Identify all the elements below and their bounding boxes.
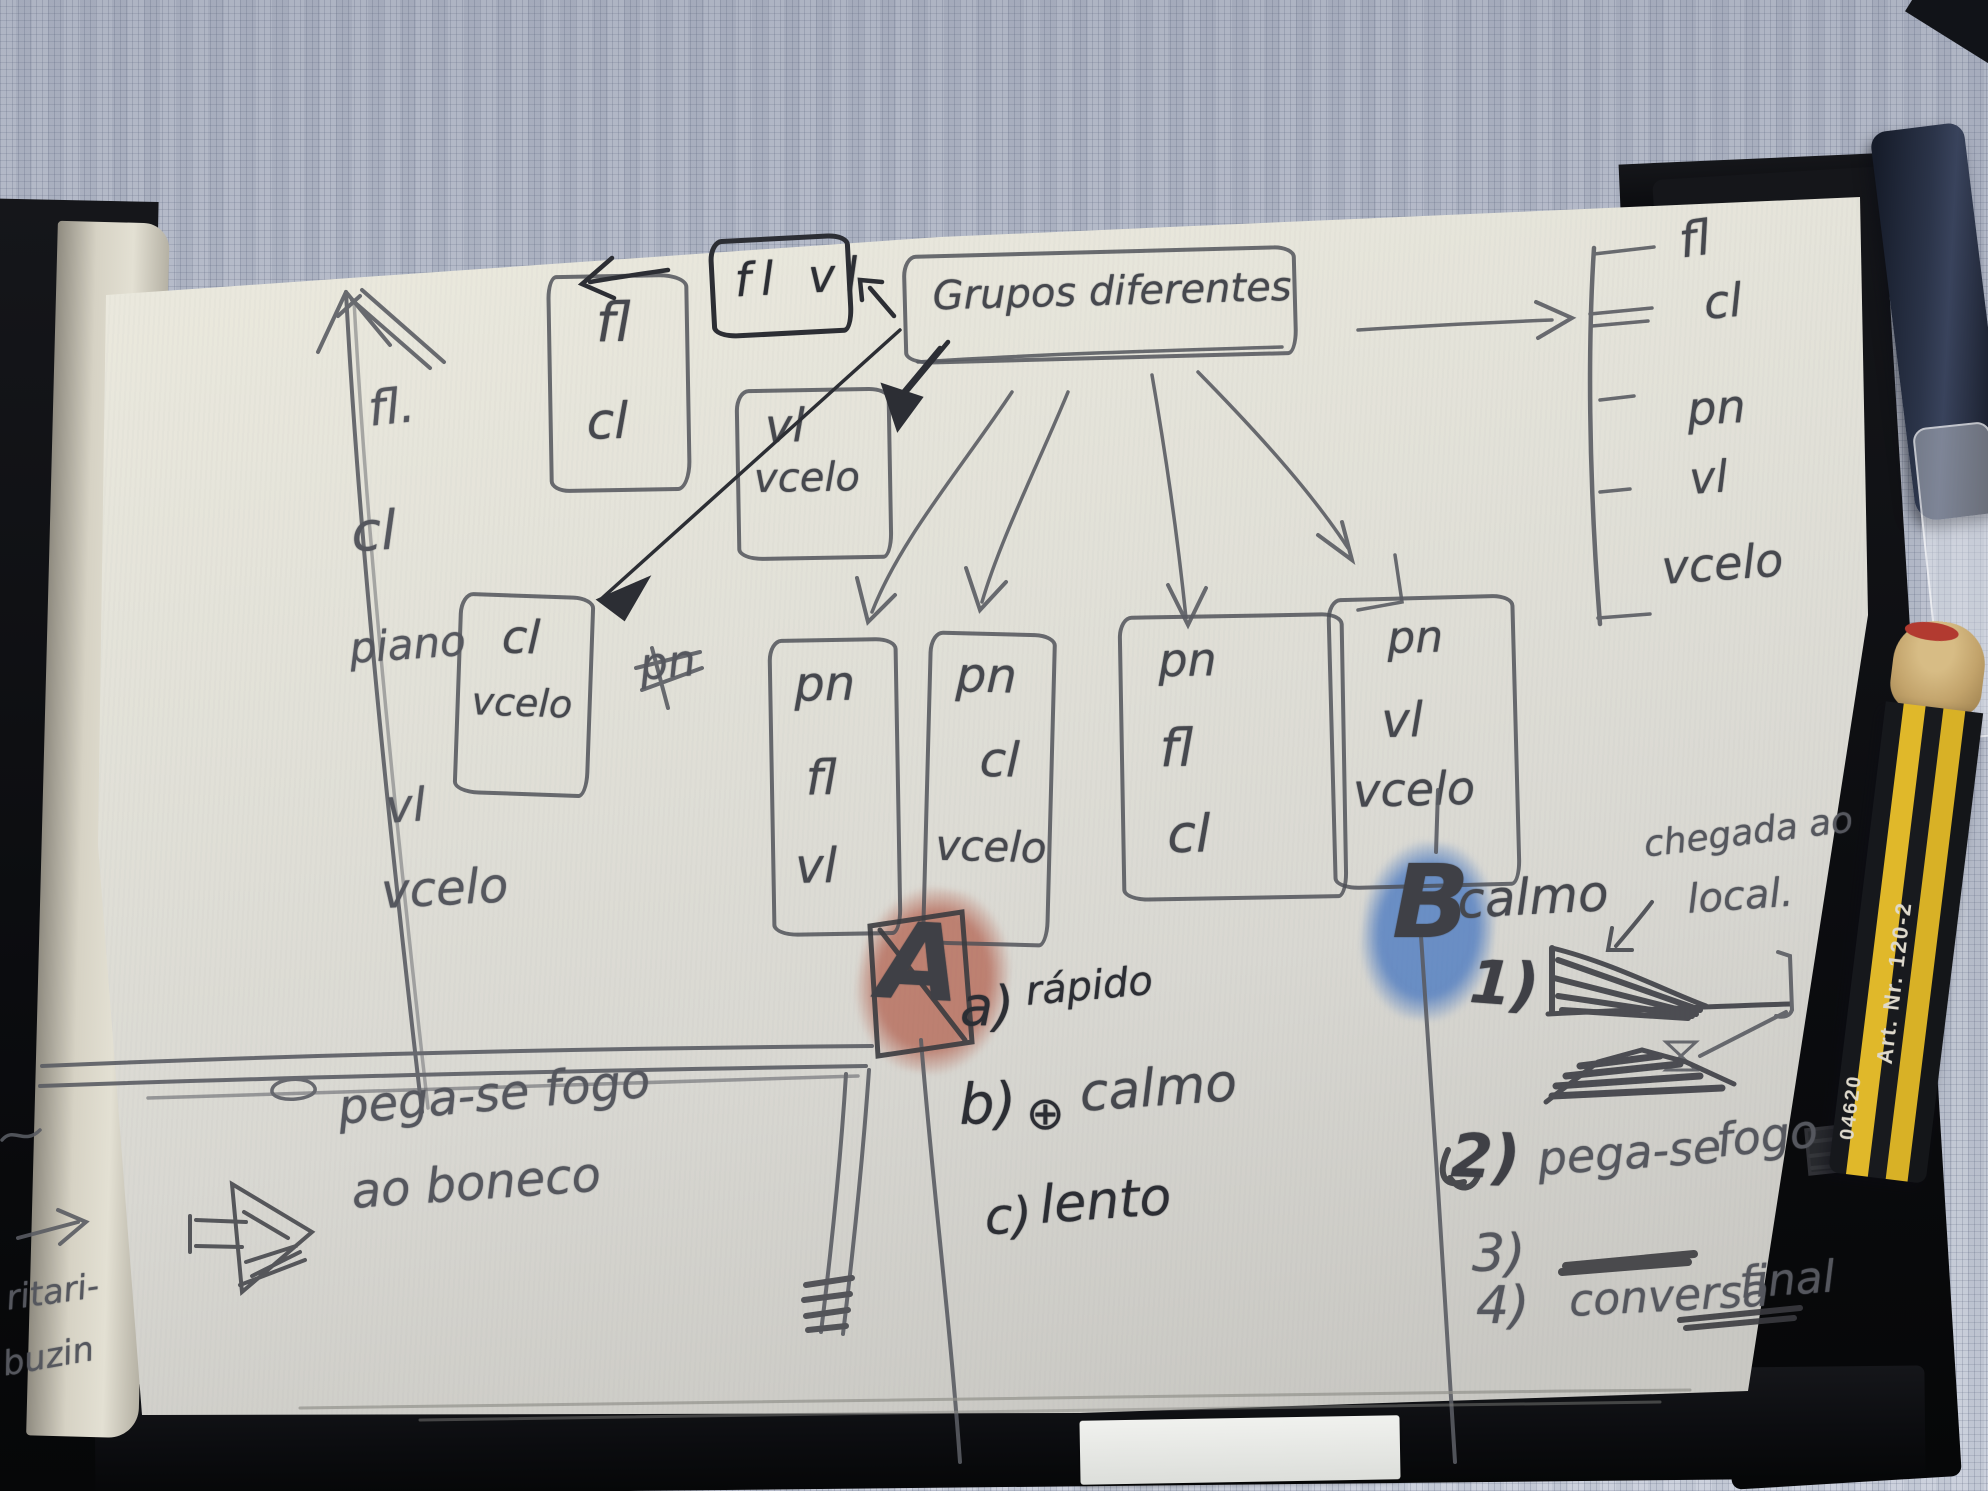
section-a-item-b-key: b)	[958, 1076, 1017, 1134]
right-list-pn: pn	[1686, 383, 1747, 432]
box-fl-vl-small: fl vl	[707, 232, 854, 339]
left-list-cl: cl	[350, 504, 397, 560]
left-list-fl: fl.	[366, 381, 417, 434]
section-b-item-4-text2: final	[1738, 1255, 1836, 1306]
box-fl-cl-l2: cl	[586, 396, 628, 447]
section-a-item-c-key: c)	[984, 1190, 1033, 1242]
box-grupos-diferentes: Grupos diferentes	[902, 245, 1299, 365]
section-a-item-c-text: lento	[1038, 1171, 1173, 1232]
section-b-item-1-key: 1)	[1468, 952, 1541, 1017]
box-pn-fl-cl-l3: cl	[1167, 808, 1211, 861]
box-pn-fl-vl-l3: vl	[795, 842, 838, 891]
plus-circle-icon: ⊕	[1026, 1090, 1065, 1136]
section-b-note-line2: local.	[1686, 873, 1794, 920]
box-pn-fl-cl-l1: pn	[1158, 636, 1217, 683]
section-b-item-4-key: 4)	[1476, 1280, 1529, 1332]
right-list-vl: vl	[1688, 455, 1729, 502]
box-pn-fl-cl: pn fl cl	[1118, 612, 1349, 902]
box-cl-vcelo-l1: cl	[501, 613, 541, 660]
box-pn-vl-vcelo-l2: vl	[1381, 696, 1424, 745]
pencil-red-paint	[1904, 619, 1960, 643]
box-pn-fl-vl-l2: fl	[805, 754, 837, 803]
box-pn-cl-vcelo-l1: pn	[955, 651, 1017, 701]
section-b-item-2-text2: fogo	[1714, 1107, 1820, 1163]
grupos-diferentes-title: Grupos diferentes	[932, 267, 1292, 316]
box-pn-fl-vl-l1: pn	[794, 660, 856, 709]
box-pn-cl-vcelo-l2: cl	[979, 736, 1020, 785]
box-cl-vcelo-l2: vcelo	[471, 682, 573, 723]
box-vl-vcelo-l2: vcelo	[754, 457, 861, 499]
section-b-item-3-key: 3)	[1472, 1228, 1525, 1280]
section-b-item-2-key: 2)	[1450, 1126, 1521, 1188]
box-pn-fl-vl: pn fl vl	[767, 637, 902, 937]
section-a-letter: A	[876, 908, 963, 1018]
box-pn-vl-vcelo-l1: pn	[1387, 615, 1444, 660]
bookmark-strip	[1079, 1415, 1400, 1485]
section-b-heading: calmo	[1456, 868, 1610, 926]
box-pn-vl-vcelo-l3: vcelo	[1353, 765, 1476, 814]
left-list-piano: piano	[348, 620, 467, 670]
left-list-vcelo: vcelo	[380, 861, 509, 916]
notebook-photo-scene: ritari- buzin fl vl Grupos diferentes fl…	[0, 0, 1988, 1491]
box-fl-cl-l1: fl	[595, 296, 631, 351]
box-vl-vcelo-l1: vl	[765, 402, 806, 449]
left-list-vl: vl	[384, 781, 427, 830]
box-vl-vcelo: vl vcelo	[735, 387, 894, 562]
right-list-vcelo: vcelo	[1660, 537, 1785, 591]
right-list-cl: cl	[1702, 277, 1744, 326]
right-list-fl: fl	[1676, 214, 1713, 266]
box-cl-vcelo: cl vcelo	[453, 592, 596, 799]
section-a-item-a-text: rápido	[1024, 961, 1154, 1012]
section-b-item-2-text1: pega-se	[1536, 1123, 1723, 1182]
section-a-item-a-key: a)	[960, 980, 1014, 1034]
pen-cap-corner	[1905, 0, 1988, 91]
box-fl-vl-label: fl vl	[733, 250, 869, 303]
crossed-note-pn: pn	[638, 639, 697, 688]
pencil-art-label: Art. Nr. 120-2	[1872, 765, 1934, 1066]
section-a-item-b-text: calmo	[1078, 1057, 1239, 1120]
box-pn-cl-vcelo-l3: vcelo	[935, 825, 1047, 870]
box-fl-cl: fl cl	[546, 273, 692, 493]
box-pn-cl-vcelo: pn cl vcelo	[921, 630, 1057, 947]
box-pn-fl-cl-l2: fl	[1159, 723, 1193, 776]
